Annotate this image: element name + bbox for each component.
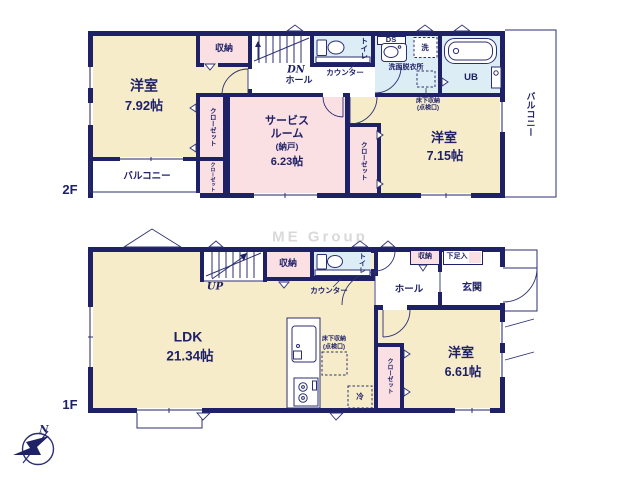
label-1f-underfloor-2: (点検口) (323, 345, 345, 352)
label-1f-hall: ホール (395, 285, 424, 295)
label-2f-toilet: トイレ (360, 37, 368, 60)
room-size-ldk: 21.34帖 (166, 350, 213, 365)
label-service-room-size: 6.23帖 (271, 156, 303, 168)
label-closet-b: クローゼット (210, 162, 215, 192)
room-size-yoshitsu-661: 6.61帖 (445, 366, 482, 380)
label-service-room-1: サービス (265, 115, 309, 127)
label-1f-underfloor-1: 床下収納 (322, 337, 346, 344)
label-balcony-side: バルコニー (526, 92, 535, 137)
label-washer: 洗 (421, 44, 429, 52)
label-2f-storage: 収納 (215, 44, 233, 54)
floor-label-2f: 2F (62, 183, 77, 197)
room-name-yoshitsu-792: 洋室 (130, 78, 158, 93)
floor-label-1f: 1F (62, 398, 77, 412)
label-1f-storage-stairs: 収納 (279, 259, 297, 269)
compass-north-label: N (39, 425, 48, 436)
label-service-room-2: ルーム (271, 128, 304, 140)
label-closet-a: クローゼット (208, 108, 215, 147)
label-1f-closet: クローゼット (386, 358, 392, 394)
label-duct-space: DS (386, 36, 396, 44)
label-washroom: 洗面脱衣所 (389, 64, 424, 72)
label-2f-hall: ホール (285, 76, 312, 86)
label-2f-underfloor-1: 床下収納 (416, 99, 440, 106)
label-service-room-3: (納戸) (276, 142, 299, 151)
room-name-yoshitsu-715: 洋室 (431, 131, 457, 145)
label-entrance: 玄関 (462, 283, 482, 294)
label-1f-counter: カウンター (310, 287, 348, 295)
label-unit-bath: UB (464, 73, 478, 83)
label-balcony-front: バルコニー (123, 172, 170, 182)
label-stairs-dn: DN (287, 65, 305, 76)
label-1f-storage-hall: 収納 (418, 253, 432, 261)
room-size-yoshitsu-792: 7.92帖 (125, 99, 163, 113)
label-stairs-up: UP (207, 282, 223, 293)
label-2f-counter: カウンター (326, 69, 364, 77)
room-name-yoshitsu-661: 洋室 (448, 346, 474, 360)
label-closet-c: クローゼット (359, 142, 366, 181)
label-fridge: 冷 (356, 393, 364, 401)
label-shoe-cabinet: 下足入 (447, 253, 468, 261)
label-1f-toilet: トイレ (359, 253, 366, 274)
floorplan-linework (0, 0, 640, 480)
floorplan-canvas: ME Group 2F 洋室 7.92帖 収納 DN ホール トイレ カウンター… (0, 0, 640, 480)
label-2f-underfloor-2: (点検口) (417, 106, 439, 113)
room-size-yoshitsu-715: 7.15帖 (427, 150, 464, 164)
room-name-ldk: LDK (174, 329, 203, 344)
